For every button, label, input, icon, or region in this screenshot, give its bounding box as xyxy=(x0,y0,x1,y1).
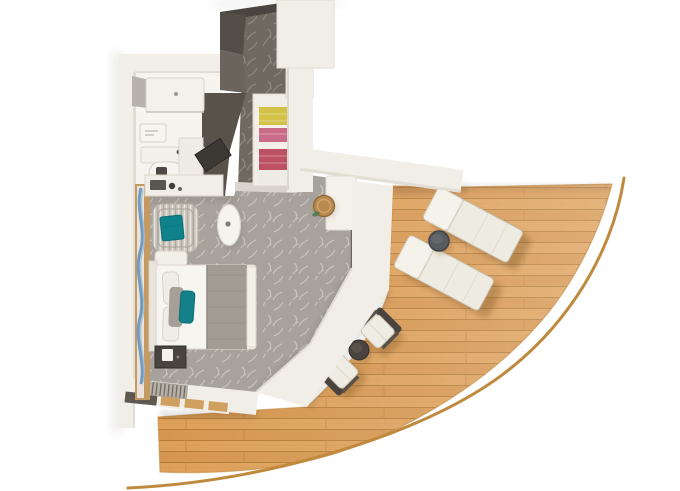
bathroom-top-wall xyxy=(119,54,232,72)
hallway-left-wall-lower xyxy=(220,50,246,93)
desk-tray xyxy=(150,180,166,190)
ottoman xyxy=(155,251,187,266)
left-outer-wall xyxy=(119,54,135,428)
wall-shadow xyxy=(463,184,611,190)
window-panel xyxy=(183,398,205,411)
kettle xyxy=(169,183,175,189)
floor-plan-image xyxy=(0,0,680,491)
bed-side-rail xyxy=(247,267,256,347)
floor-plan-svg xyxy=(0,0,680,491)
top-right-wall-block xyxy=(277,0,334,68)
teal-throw xyxy=(160,215,184,241)
window-panel xyxy=(207,400,229,413)
double-bed xyxy=(149,261,256,351)
wall-unit xyxy=(140,124,166,142)
hallway-left-wall xyxy=(220,12,246,55)
teal-accent-pillow xyxy=(179,291,195,324)
